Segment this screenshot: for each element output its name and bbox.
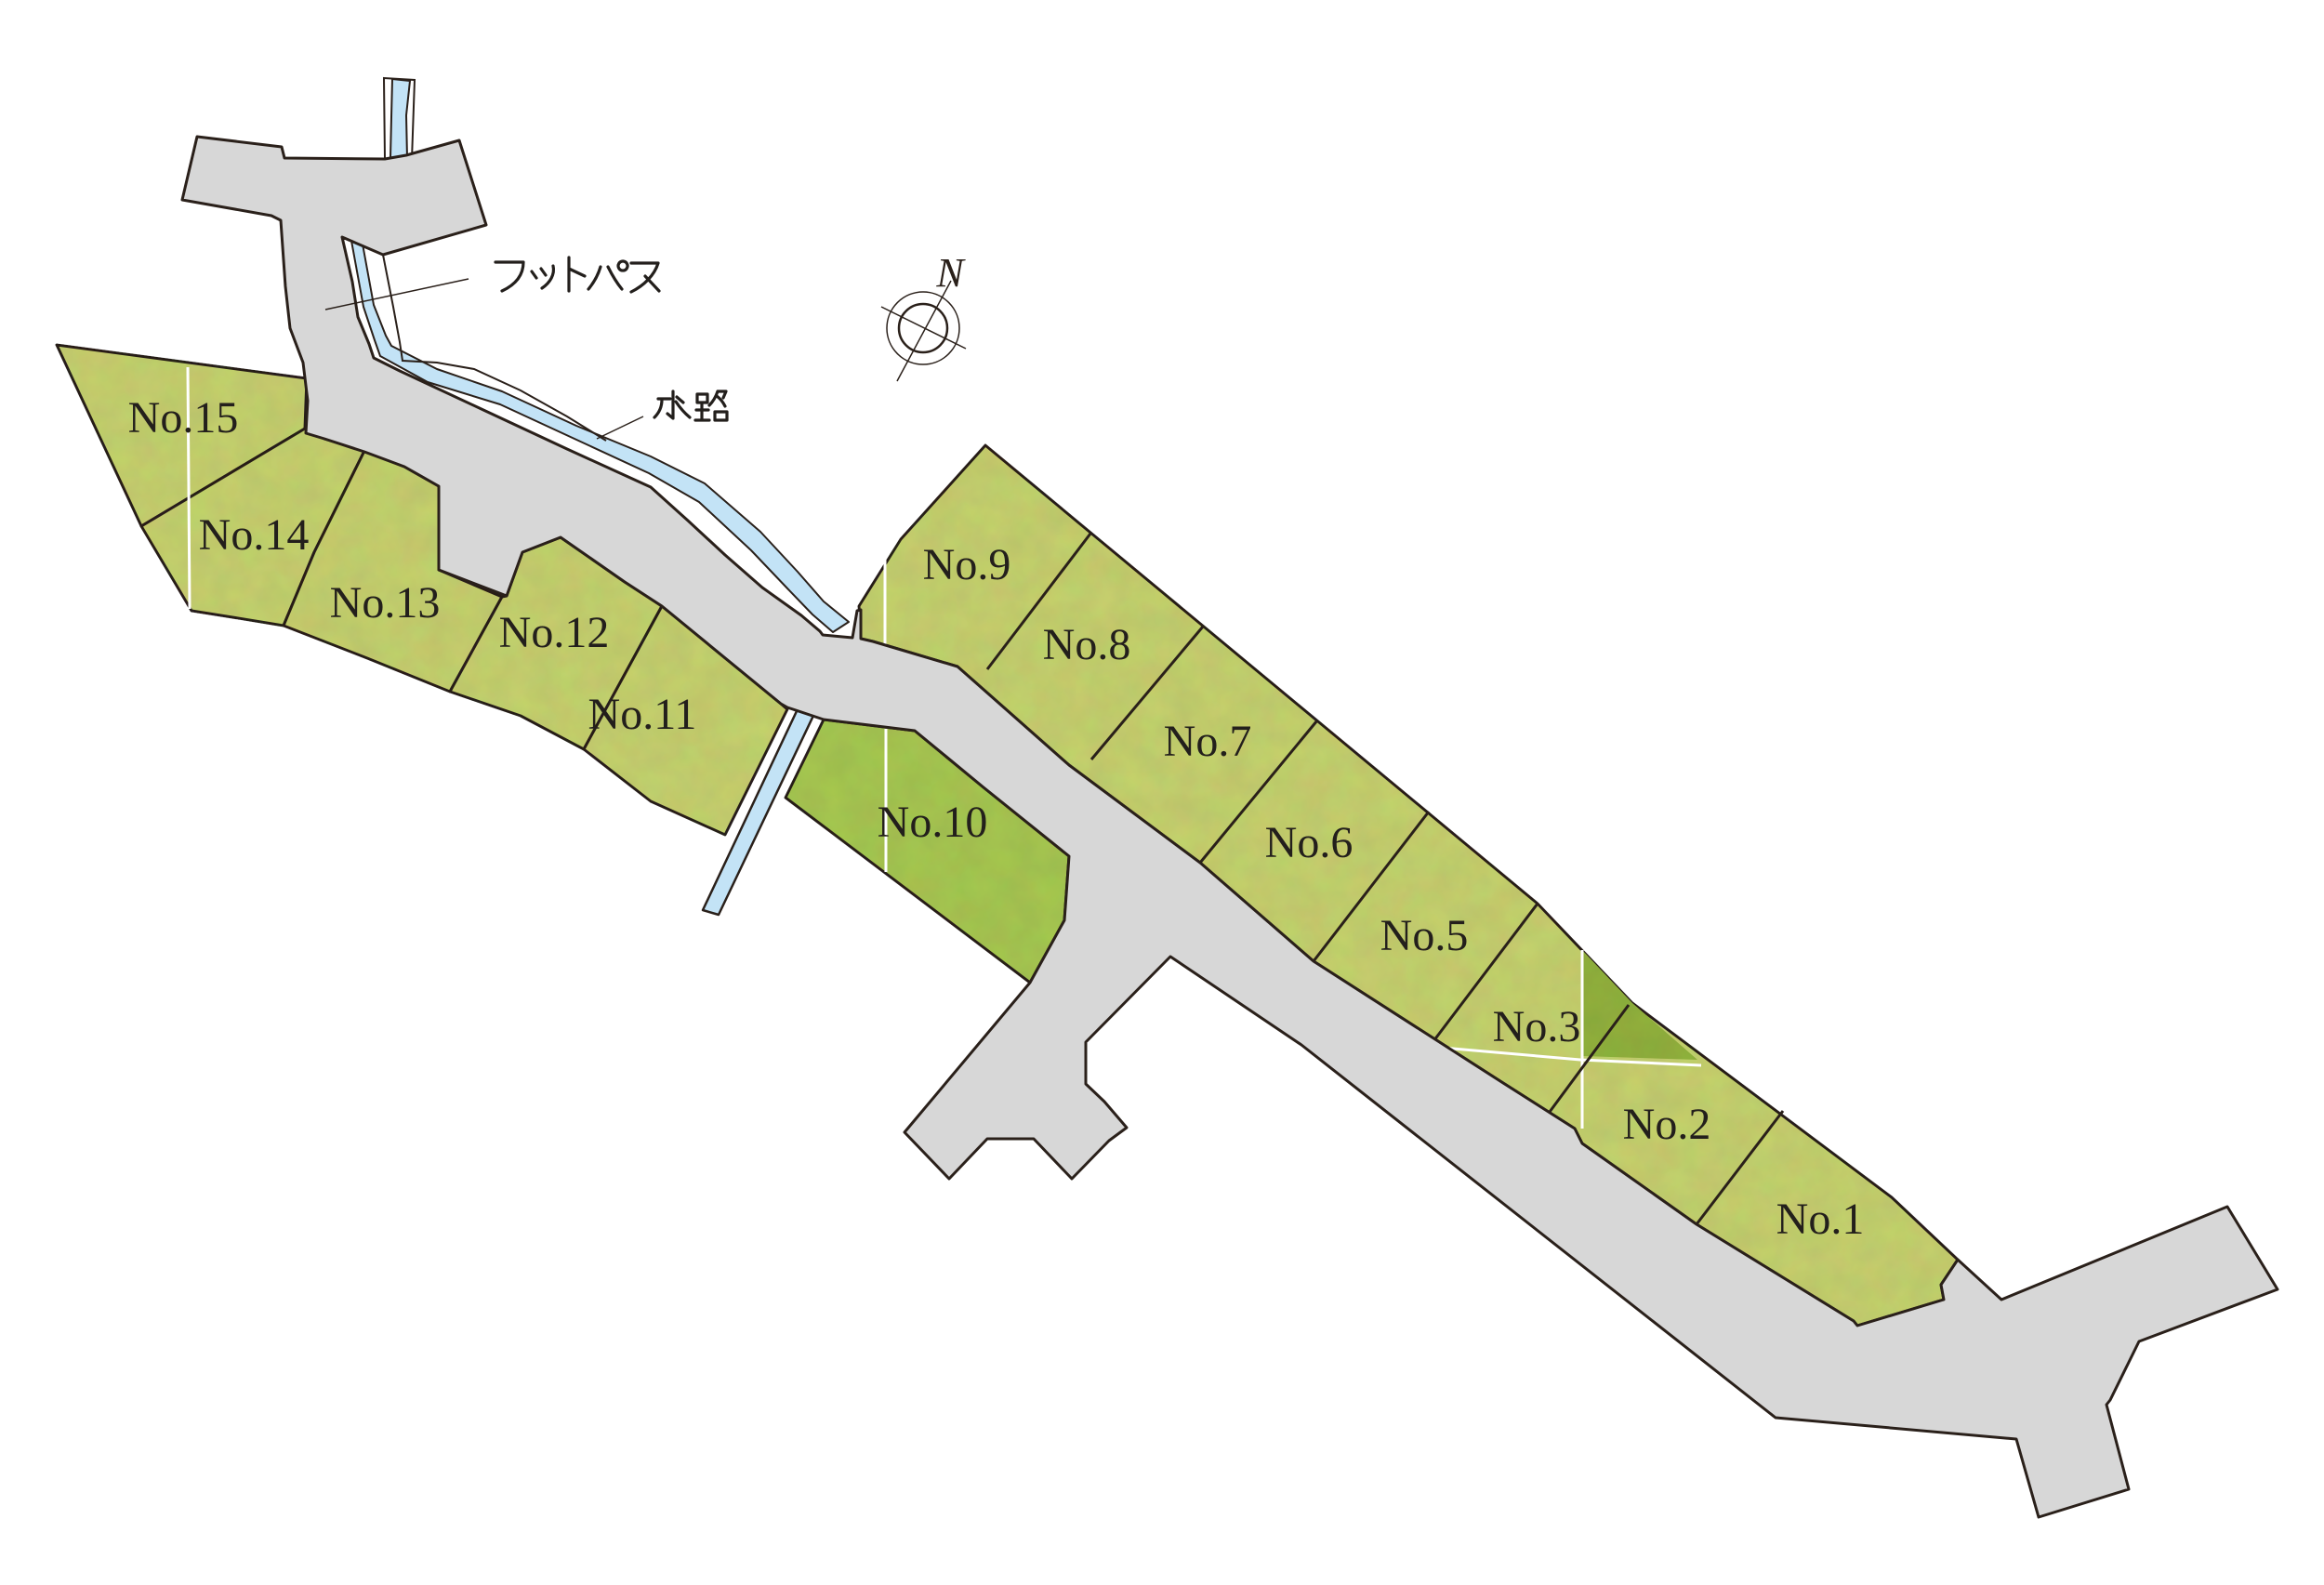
svg-text:No.5: No.5 (1380, 911, 1469, 960)
svg-text:No.13: No.13 (330, 578, 441, 627)
svg-text:No.8: No.8 (1043, 620, 1131, 669)
svg-text:No.11: No.11 (588, 690, 697, 739)
svg-text:N: N (935, 250, 966, 296)
svg-text:No.9: No.9 (923, 540, 1011, 589)
svg-text:No.7: No.7 (1164, 717, 1252, 766)
svg-text:No.3: No.3 (1493, 1002, 1581, 1051)
svg-text:No.14: No.14 (199, 510, 310, 560)
svg-text:No.10: No.10 (878, 798, 988, 847)
svg-text:No.12: No.12 (499, 608, 610, 657)
svg-text:No.6: No.6 (1265, 818, 1353, 867)
svg-text:No.15: No.15 (128, 393, 239, 442)
svg-text:No.1: No.1 (1776, 1195, 1865, 1244)
svg-text:No.2: No.2 (1623, 1100, 1711, 1149)
